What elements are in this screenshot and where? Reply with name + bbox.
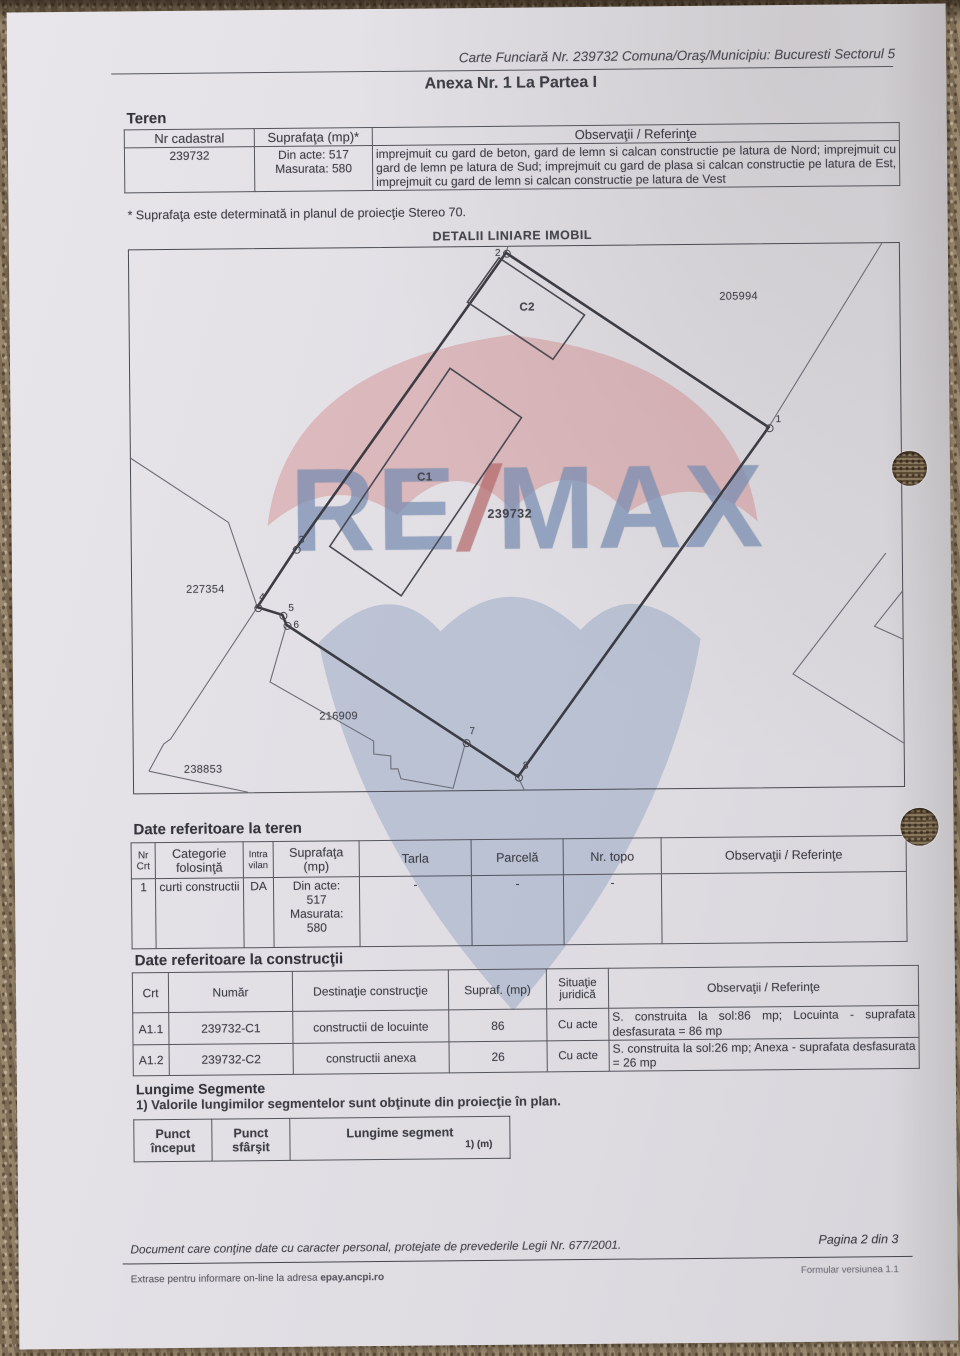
- map-point-marker-2: [503, 250, 511, 258]
- cell-supraf: 86: [449, 1009, 547, 1042]
- map-point-label-6: 6: [293, 620, 299, 631]
- col-observatii-constructii: Observaţii / Referinţe: [608, 965, 918, 1008]
- teren-table: Nr cadastral Suprafaţa (mp)* Observaţii …: [124, 122, 901, 194]
- cadastral-map: 12345678C2C12397322059942273542169092388…: [128, 242, 905, 794]
- col-suprafata-mp: Suprafaţa (mp): [273, 841, 359, 878]
- map-point-marker-5: [279, 612, 287, 620]
- page-number: Pagina 2 din 3: [698, 1232, 898, 1248]
- extras-prefix: Extrase pentru informare on-line la adre…: [131, 1273, 321, 1286]
- map-point-label-2: 2: [495, 248, 501, 259]
- segmente-header-row: Punct început Punct sfârşit Lungime segm…: [134, 1116, 510, 1162]
- map-point-marker-8: [515, 774, 523, 782]
- carte-funciara-reference: Carte Funciară Nr. 239732 Comuna/Oraş/Mu…: [213, 46, 895, 68]
- col-numar: Număr: [168, 971, 292, 1012]
- segmente-heading: Lungime Segmente: [136, 1080, 265, 1097]
- map-label-216909: 216909: [319, 710, 358, 722]
- hole-punch-top: [892, 451, 927, 486]
- map-label-c2: C2: [519, 301, 534, 313]
- col-intravilan: Intra vilan: [243, 842, 273, 878]
- map-point-marker-1: [766, 424, 774, 432]
- col-suprafata: Suprafaţa (mp)*: [254, 128, 372, 147]
- cell-observatii: imprejmuit cu gard de beton, gard de lem…: [372, 140, 899, 191]
- cell-suprafata-mp: Din acte: 517 Masurata: 580: [273, 877, 360, 948]
- map-point-marker-6: [283, 622, 291, 630]
- map-point-label-3: 3: [299, 535, 305, 546]
- col-observatii-referinte: Observaţii / Referinţe: [661, 835, 906, 873]
- cell-crt: A1.2: [133, 1045, 169, 1077]
- col-parcela: Parcelă: [471, 839, 563, 876]
- cell-tarla: -: [359, 876, 472, 947]
- teren-table-row: 239732 Din acte: 517 Masurata: 580 impre…: [124, 140, 899, 193]
- document-paper: RE/MAX Carte Funciară Nr. 239732 Comuna/…: [7, 4, 959, 1350]
- col-tarla: Tarla: [359, 840, 471, 877]
- cell-intravilan: DA: [243, 878, 274, 948]
- col-destinatie: Destinaţie construcţie: [292, 970, 448, 1011]
- constructii-row-a12: A1.2 239732-C2 constructii anexa 26 Cu a…: [133, 1037, 919, 1076]
- segmente-table: Punct început Punct sfârşit Lungime segm…: [133, 1116, 510, 1163]
- cell-observatii: S. construita la sol:26 mp; Anexa - supr…: [609, 1037, 919, 1071]
- constructii-heading: Date referitoare la construcţii: [135, 950, 344, 969]
- privacy-note: Document care conţine date cu caracter p…: [130, 1238, 621, 1257]
- col-nr-cadastral: Nr cadastral: [124, 129, 254, 148]
- map-point-marker-3: [293, 546, 301, 554]
- cell-observatii: S. construita la sol:86 mp; Locuinta - s…: [609, 1005, 919, 1040]
- col-punct-inceput: Punct început: [134, 1119, 212, 1162]
- cell-nr-topo: -: [563, 874, 662, 945]
- map-point-label-1: 1: [775, 414, 781, 425]
- col-punct-sfarsit: Punct sfârşit: [212, 1118, 290, 1161]
- segmente-note: 1) Valorile lungimilor segmentelor sunt …: [136, 1093, 561, 1112]
- constructii-table: Crt Număr Destinaţie construcţie Supraf.…: [132, 965, 920, 1077]
- lungime-segment-unit: 1) (m): [293, 1139, 506, 1152]
- col-supraf-mp: Supraf. (mp): [448, 969, 546, 1010]
- cell-crt: A1.1: [133, 1013, 169, 1045]
- map-label-239732: 239732: [487, 507, 532, 521]
- form-version: Formular versiunea 1.1: [699, 1264, 899, 1277]
- teren-date-row: 1 curti constructii DA Din acte: 517 Mas…: [131, 871, 907, 948]
- cell-numar: 239732-C2: [169, 1043, 293, 1076]
- col-nr-topo: Nr. topo: [563, 838, 661, 875]
- map-label-205994: 205994: [719, 290, 758, 302]
- map-point-marker-4: [254, 604, 262, 612]
- map-label-227354: 227354: [186, 583, 225, 595]
- map-point-label-4: 4: [259, 592, 265, 603]
- cell-observatii-referinte: [661, 871, 907, 943]
- cell-suprafata: Din acte: 517 Masurata: 580: [254, 146, 372, 193]
- cell-nr-cadastral: 239732: [124, 147, 254, 194]
- col-situatie-juridica: Situaţie juridică: [546, 968, 608, 1009]
- map-point-label-8: 8: [523, 761, 529, 772]
- cell-categorie: curti constructii: [155, 878, 244, 949]
- cell-destinatie: constructii de locuinte: [293, 1010, 449, 1043]
- map-label-c1: C1: [417, 471, 432, 483]
- teren-date-heading: Date referitoare la teren: [133, 820, 302, 839]
- teren-date-table: Nr Crt Categorie folosinţă Intra vilan S…: [131, 835, 908, 949]
- page-title: Anexa Nr. 1 La Partea I: [123, 71, 898, 96]
- cell-numar: 239732-C1: [169, 1011, 293, 1044]
- map-point-label-7: 7: [469, 726, 475, 737]
- col-crt: Crt: [132, 973, 168, 1013]
- extras-url: epay.ancpi.ro: [320, 1272, 384, 1284]
- teren-footnote: * Suprafaţa este determinată in planul d…: [127, 205, 466, 222]
- map-point-label-5: 5: [288, 603, 294, 614]
- cell-destinatie: constructii anexa: [293, 1042, 449, 1075]
- teren-heading: Teren: [127, 110, 167, 127]
- col-nr-crt: Nr Crt: [131, 843, 155, 879]
- cell-situatie: Cu acte: [547, 1008, 609, 1041]
- photo-of-cadastral-document: { "document": { "header_reference": "Car…: [0, 0, 960, 1356]
- col-categorie: Categorie folosinţă: [155, 842, 243, 879]
- col-lungime-segment: Lungime segment 1) (m): [290, 1116, 510, 1160]
- cell-nr-crt: 1: [131, 879, 156, 949]
- cell-parcela: -: [471, 875, 564, 946]
- hole-punch-bottom: [900, 808, 938, 846]
- cell-supraf: 26: [449, 1041, 547, 1073]
- map-point-marker-7: [463, 739, 471, 747]
- extras-note: Extrase pentru informare on-line la adre…: [131, 1272, 384, 1285]
- map-label-238853: 238853: [184, 764, 223, 776]
- cell-situatie: Cu acte: [547, 1040, 609, 1072]
- footer-rule: [123, 1256, 913, 1265]
